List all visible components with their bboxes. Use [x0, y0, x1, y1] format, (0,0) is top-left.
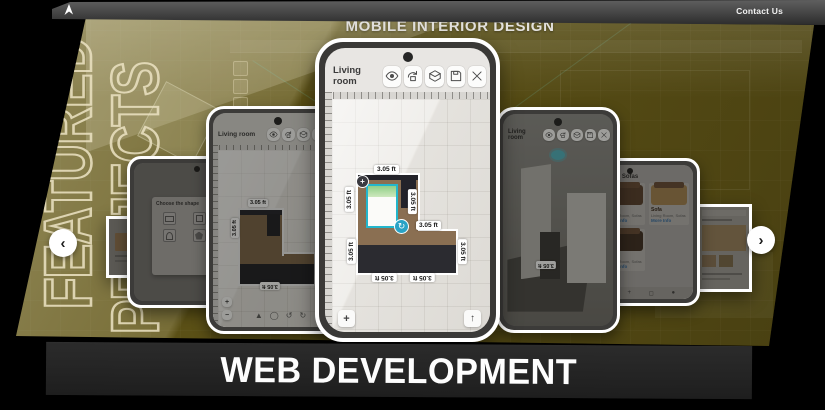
- category-banner: WEB DEVELOPMENT: [46, 342, 752, 399]
- view-3d-icon: [425, 66, 443, 87]
- contact-us-link[interactable]: Contact Us: [736, 6, 783, 16]
- background-toolbar: [230, 40, 802, 53]
- floor-plan: + ↻ 3.05 ft 3.05 ft 3.05 ft 3.05 ft 3.05…: [348, 165, 470, 285]
- scroll-up-button: ↑: [464, 310, 481, 327]
- measurement-label: 3.05 ft: [347, 239, 356, 264]
- logo-icon[interactable]: [62, 2, 77, 17]
- featured-word: FEATURED: [36, 38, 103, 309]
- move-handle-icon: +: [356, 175, 369, 188]
- vertical-ruler: [325, 92, 332, 332]
- room-dark-floor: [356, 229, 458, 275]
- rotate-3d-icon: [404, 66, 422, 87]
- chevron-left-icon: ‹: [61, 235, 66, 252]
- page: FEATURED PROJECTS MOBILE INTERIOR DESIGN…: [0, 0, 825, 410]
- featured-text-column-1: FEATURED: [36, 38, 103, 309]
- category-banner-label: WEB DEVELOPMENT: [220, 349, 577, 393]
- furniture-pillows: [368, 186, 396, 197]
- close-icon: [468, 66, 486, 87]
- plan-canvas: + ↻ 3.05 ft 3.05 ft 3.05 ft 3.05 ft 3.05…: [332, 99, 490, 332]
- chevron-right-icon: ›: [759, 232, 764, 249]
- measurement-label: 3.05 ft: [408, 189, 417, 214]
- save-icon: [447, 66, 465, 87]
- carousel-item-editor-phone[interactable]: Living room + ↻: [315, 38, 500, 342]
- carousel-item-detail-crop[interactable]: [696, 204, 752, 292]
- visibility-icon: [383, 66, 401, 87]
- measurement-label: 3.05 ft: [458, 239, 467, 264]
- horizontal-ruler: [333, 92, 490, 99]
- measurement-label: 3.05 ft: [372, 273, 397, 282]
- room-name-label: Living room: [333, 65, 380, 87]
- measurement-label: 3.05 ft: [374, 165, 399, 174]
- camera-punch-hole: [403, 52, 413, 62]
- zoom-in-button: +: [338, 310, 355, 327]
- carousel-prev-button[interactable]: ‹: [49, 229, 77, 257]
- carousel-next-button[interactable]: ›: [747, 226, 775, 254]
- measurement-label: 3.05 ft: [410, 273, 435, 282]
- measurement-label: 3.05 ft: [345, 187, 354, 212]
- rotate-handle-icon: ↻: [394, 219, 409, 234]
- measurement-label: 3.05 ft: [416, 221, 441, 230]
- carousel-item-3d-phone[interactable]: Living room 3.05 ft: [496, 107, 620, 333]
- selected-furniture: [366, 184, 398, 228]
